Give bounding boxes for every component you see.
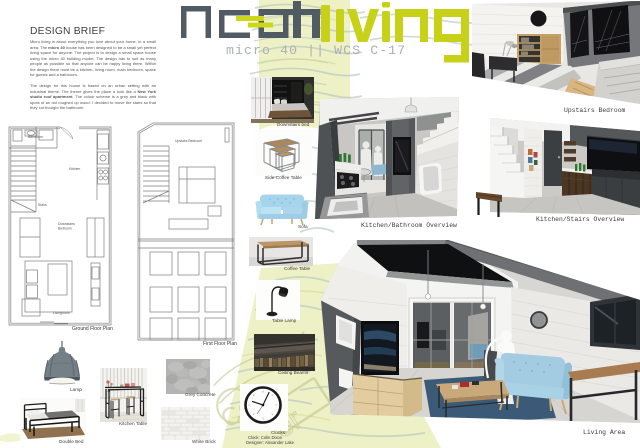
svg-text:Stairs: Stairs (38, 203, 47, 207)
svg-text:Downstairs: Downstairs (58, 222, 75, 226)
svg-text:Upstairs Bedroom: Upstairs Bedroom (175, 139, 202, 143)
svg-text:Livingroom: Livingroom (53, 311, 70, 315)
svg-text:micro 40 || WCS C-17: micro 40 || WCS C-17 (226, 43, 406, 58)
svg-text:Bedroom: Bedroom (58, 227, 72, 231)
svg-text:Bathroom: Bathroom (28, 135, 43, 139)
svg-text:Kitchen: Kitchen (69, 167, 80, 171)
